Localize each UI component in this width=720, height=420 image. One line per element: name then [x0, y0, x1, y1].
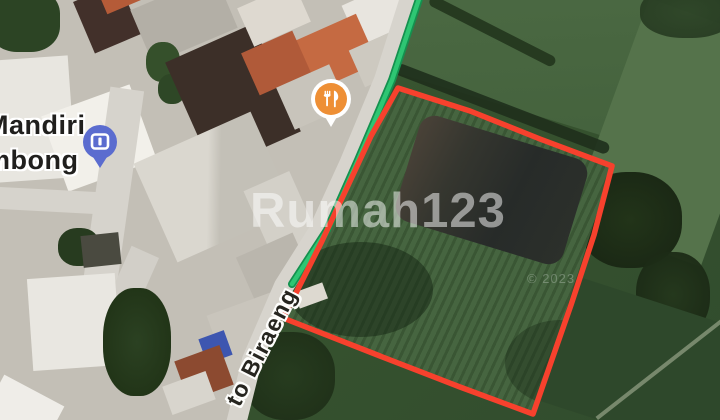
satellite-map[interactable]: Mandiri mbong to Biraeng Rumah123 © 2023: [0, 0, 720, 420]
watermark: Rumah123: [250, 183, 506, 239]
bank-pin[interactable]: [83, 125, 117, 170]
plot-boundary[interactable]: [283, 88, 612, 414]
bank-label-line2: mbong: [0, 143, 86, 178]
atm-icon: [89, 131, 111, 153]
restaurant-pin[interactable]: [311, 79, 351, 129]
fork-knife-icon: [320, 88, 342, 110]
bank-label-line1: Mandiri: [0, 108, 86, 143]
bank-pin-circle: [83, 125, 117, 159]
bank-label: Mandiri mbong: [0, 108, 86, 178]
restaurant-pin-circle: [315, 83, 347, 115]
copyright-label: © 2023: [527, 271, 575, 286]
